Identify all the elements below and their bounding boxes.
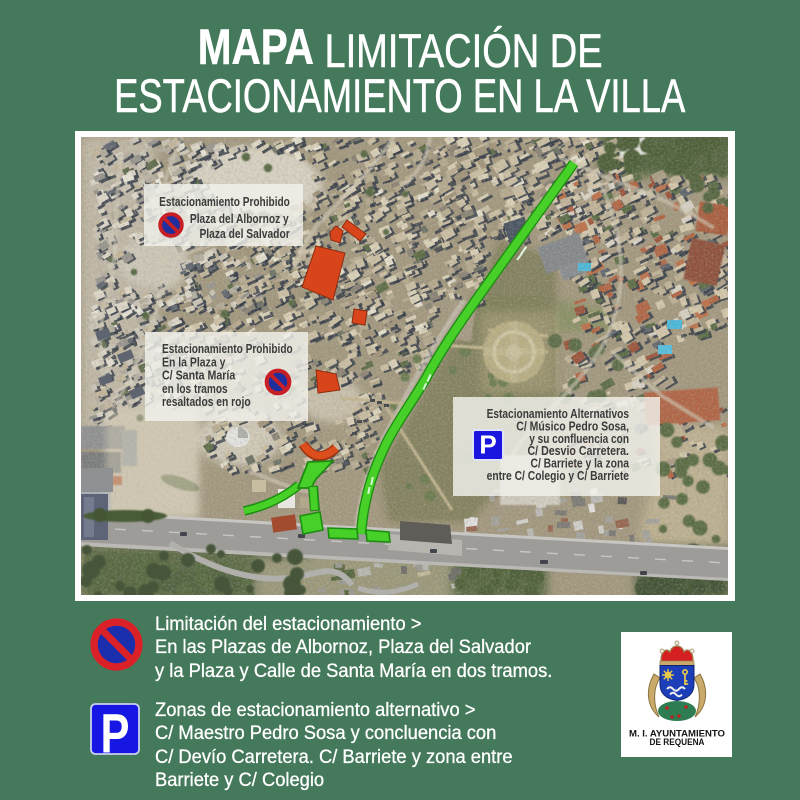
- svg-text:resaltados en rojo: resaltados en rojo: [162, 395, 251, 409]
- svg-text:C/ Santa María: C/ Santa María: [162, 369, 236, 383]
- svg-text:entre C/ Colegio y C/ Barriete: entre C/ Colegio y C/ Barriete: [487, 469, 629, 483]
- svg-text:DE REQUENA: DE REQUENA: [650, 737, 705, 748]
- svg-text:P: P: [479, 430, 496, 460]
- svg-text:Estacionamiento Prohibido: Estacionamiento Prohibido: [162, 342, 293, 356]
- svg-text:en los tramos: en los tramos: [162, 382, 228, 396]
- svg-text:Estacionamiento Prohibido: Estacionamiento Prohibido: [159, 195, 290, 209]
- svg-text:Plaza del Albornoz y: Plaza del Albornoz y: [190, 212, 289, 226]
- svg-text:P: P: [101, 703, 130, 755]
- svg-text:Plaza del Salvador: Plaza del Salvador: [199, 227, 289, 241]
- svg-text:En la Plaza y: En la Plaza y: [162, 355, 225, 369]
